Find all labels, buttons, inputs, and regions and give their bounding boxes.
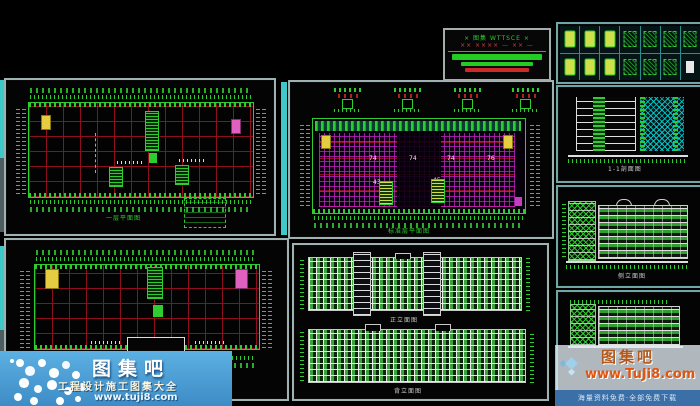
details-grid — [560, 26, 700, 80]
title-block-line2: ×× ×××× — ×× — — [445, 42, 549, 49]
dimension-row — [30, 95, 252, 99]
dimension-col — [20, 268, 24, 348]
panel-details-grid — [556, 22, 700, 84]
plan-yellow-block — [321, 135, 331, 149]
plan-yellow-block — [503, 135, 513, 149]
elevation-back-label: 背立面图 — [394, 386, 422, 395]
dim-text-marks — [179, 159, 207, 162]
wall-band — [313, 209, 525, 213]
dim-text-marks — [195, 341, 225, 344]
stair-core — [147, 267, 163, 299]
divider — [448, 51, 546, 52]
red-bar — [465, 68, 529, 72]
stair-core — [431, 179, 445, 203]
dimension-col — [536, 122, 540, 206]
elevation-front-label: 正立面图 — [390, 315, 418, 324]
detail-cell — [600, 26, 619, 53]
detail-cluster — [508, 86, 544, 112]
plan-yellow-block — [41, 115, 51, 130]
dimension-col — [526, 255, 530, 311]
detail-cell — [641, 54, 660, 81]
watermark-url: www.tuji8.com — [94, 392, 178, 403]
detail-cluster — [450, 86, 486, 112]
ground-line — [568, 155, 688, 157]
green-edge — [673, 97, 678, 151]
watermark-title: 图集吧 — [601, 346, 655, 367]
room-number: 74 — [409, 155, 417, 162]
floor-plan-drawing — [34, 264, 260, 350]
plan-magenta-block — [231, 119, 241, 134]
detail-cell — [580, 54, 599, 81]
wall-line — [95, 133, 96, 173]
watermark-url: www.TuJi8.com — [585, 367, 695, 382]
dimension-col — [300, 331, 304, 381]
stair-core — [175, 165, 189, 185]
panel-section: 1-1剖面图 — [556, 85, 700, 183]
section-green-shaft — [593, 97, 605, 151]
dimension-row — [36, 250, 256, 255]
elevation-drawing-front — [308, 257, 522, 311]
dimension-row — [36, 257, 256, 261]
detail-cell — [620, 26, 639, 53]
ground-line — [566, 261, 688, 263]
watermark-tuji8-left: 图集吧 工程设计施工图集大全 www.tuji8.com — [0, 351, 232, 406]
detail-cell — [560, 54, 579, 81]
plan-magenta-block — [235, 269, 248, 289]
section-stair-zigzag — [640, 97, 684, 151]
section-label: 1-1剖面图 — [608, 164, 642, 173]
dimension-col — [306, 122, 310, 206]
stair-core — [145, 111, 159, 151]
room-number: 74 — [369, 155, 377, 162]
room-number: 74 — [447, 155, 455, 162]
stair-tower-elevation — [568, 201, 596, 261]
dimension-col — [530, 331, 534, 383]
plan3-label: 标准层平面图 — [388, 226, 430, 235]
green-bar — [461, 62, 533, 66]
watermark-banner: 海量资料免费·全部免费下载 — [555, 390, 700, 406]
plan-green-block — [149, 153, 157, 163]
dimension-col — [300, 122, 304, 206]
green-edge — [640, 97, 645, 151]
roof-cap — [435, 324, 451, 331]
section-floors — [576, 97, 636, 151]
title-block-line1: × 图集 WTTSCE × — [445, 33, 549, 42]
panel-floor-plan-3: 74 74 74 76 43 45 标准层平面图 — [288, 80, 554, 239]
plan-green-block — [153, 305, 163, 317]
watermark-tuji8-right: 图集吧 www.TuJi8.com 海量资料免费·全部免费下载 — [555, 345, 700, 406]
floor-plan-drawing — [28, 102, 254, 198]
stair-tower-elevation — [570, 304, 596, 346]
plan-yellow-block — [45, 269, 59, 289]
scrollbar-fragment — [281, 82, 287, 235]
panel-floor-plan-1: 一层平面图 — [4, 78, 276, 236]
crystal-flower-icon — [563, 355, 579, 371]
dimension-row — [568, 159, 688, 163]
dimension-col — [268, 268, 272, 348]
dimension-row — [566, 265, 688, 269]
stair-tower — [423, 252, 441, 316]
side1-label: 侧立面图 — [618, 271, 646, 280]
detail-cell — [641, 26, 660, 53]
dimension-row — [30, 88, 252, 93]
room-number: 76 — [487, 155, 495, 162]
wall-band — [29, 103, 253, 107]
dimension-col — [256, 106, 260, 194]
panel-elevations: 正立面图 背立面图 — [292, 243, 549, 401]
roof-cap — [365, 324, 381, 331]
stair-tower — [353, 252, 371, 316]
detail-cluster — [390, 86, 426, 112]
dimension-col — [300, 259, 304, 309]
dimension-col — [16, 106, 20, 194]
dim-text-marks — [117, 161, 145, 164]
stair-core — [379, 181, 393, 205]
elevation-drawing-back — [308, 329, 526, 383]
wall-band — [315, 121, 521, 131]
roof-cap — [395, 253, 411, 259]
dim-text-marks — [91, 341, 121, 344]
detail-cell — [661, 26, 680, 53]
elevation-body — [598, 306, 680, 346]
detail-cell — [560, 26, 579, 53]
dimension-col — [262, 106, 266, 194]
green-bar — [452, 54, 542, 60]
dimension-col — [530, 122, 534, 206]
detail-cell — [661, 54, 680, 81]
detail-cell — [681, 54, 700, 81]
watermark-subtitle: 工程设计施工图集大全 — [58, 378, 178, 393]
watermark-title: 图集吧 — [92, 354, 170, 381]
detail-cell — [681, 26, 700, 53]
panel-side-elevation-1: 侧立面图 — [556, 185, 700, 288]
dimension-col — [26, 268, 30, 348]
floor-plan-drawing: 74 74 74 76 43 45 — [312, 118, 526, 214]
elevation-body — [598, 205, 688, 259]
dimension-col — [562, 203, 566, 257]
plan1-label: 一层平面图 — [106, 213, 141, 222]
mini-detail-drawing — [184, 198, 226, 228]
dimension-col — [262, 268, 266, 348]
detail-cell — [600, 54, 619, 81]
detail-cluster — [330, 86, 366, 112]
dimension-row — [314, 216, 524, 220]
cad-drawing-collage: 一层平面图 二层平面图 — [0, 0, 700, 406]
plan-magenta-block — [515, 197, 522, 206]
dimension-col — [22, 106, 26, 194]
plum-blossom-logo — [10, 359, 14, 363]
title-block: × 图集 WTTSCE × ×× ×××× — ×× — — [443, 28, 551, 81]
wall-band — [29, 193, 253, 197]
stair-core — [109, 167, 123, 187]
detail-cell — [580, 26, 599, 53]
detail-cell — [620, 54, 639, 81]
